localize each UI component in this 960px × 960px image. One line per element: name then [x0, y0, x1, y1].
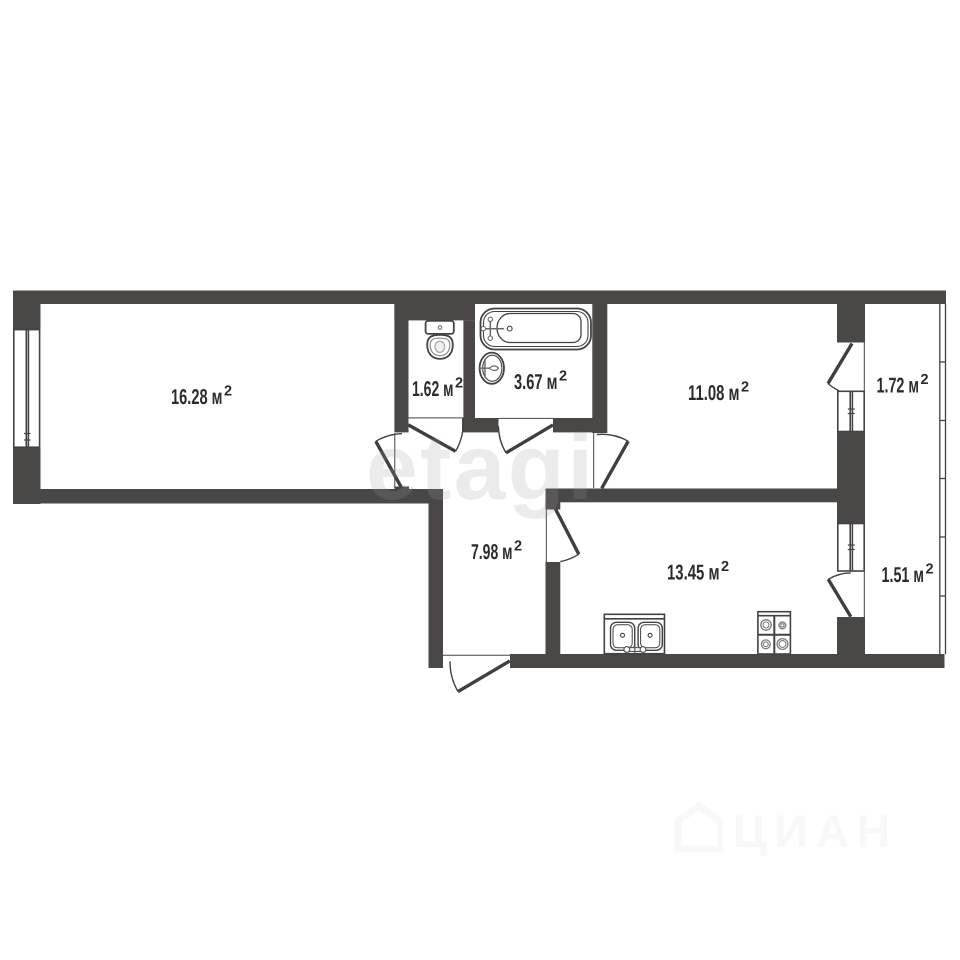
svg-text:1.51 м: 1.51 м	[882, 563, 925, 587]
svg-text:1.72 м: 1.72 м	[877, 374, 920, 398]
svg-text:3.67 м: 3.67 м	[514, 370, 558, 394]
svg-text:2: 2	[559, 369, 567, 385]
svg-text:2: 2	[455, 376, 463, 392]
svg-text:2: 2	[224, 384, 232, 400]
svg-text:2: 2	[926, 562, 934, 578]
svg-text:2: 2	[741, 380, 749, 396]
svg-text:1.62 м: 1.62 м	[412, 377, 454, 401]
svg-text:ЦИАН: ЦИАН	[733, 805, 898, 857]
svg-text:11.08 м: 11.08 м	[688, 381, 740, 405]
svg-text:16.28 м: 16.28 м	[171, 385, 223, 409]
svg-text:2: 2	[921, 372, 929, 388]
svg-text:2: 2	[514, 539, 522, 555]
svg-text:etagi: etagi	[366, 415, 596, 519]
svg-text:2: 2	[721, 559, 729, 575]
svg-text:7.98 м: 7.98 м	[471, 540, 513, 564]
svg-text:13.45 м: 13.45 м	[667, 561, 720, 585]
